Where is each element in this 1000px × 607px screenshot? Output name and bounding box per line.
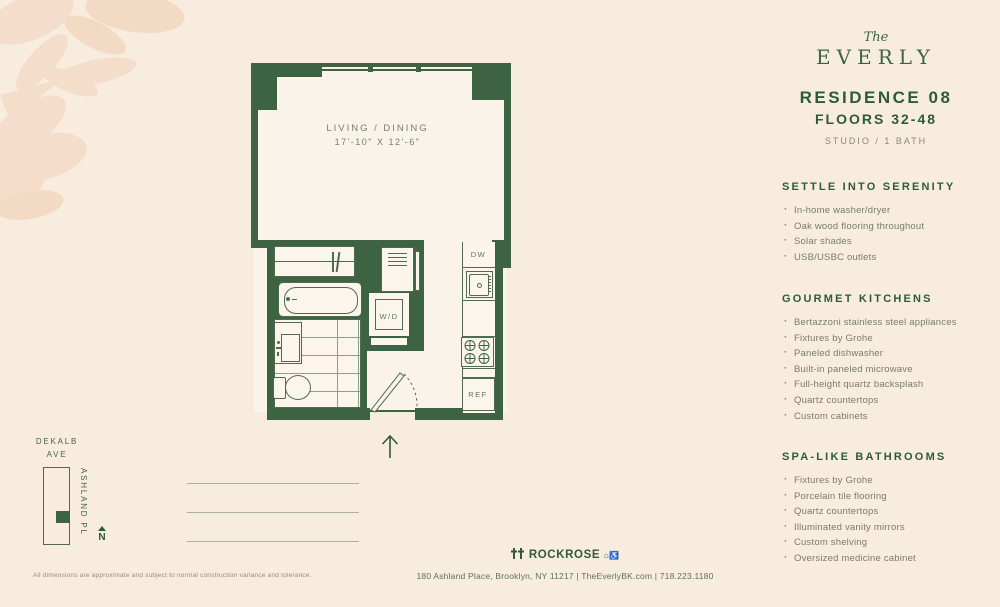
window-outer-line	[322, 63, 472, 67]
note-line	[187, 512, 359, 513]
wd-base	[371, 338, 407, 345]
feature-item: Quartz countertops	[782, 507, 1000, 517]
compass-arrow-icon	[98, 526, 106, 531]
developer-name: ROCKROSE	[529, 549, 600, 561]
map-street-side: ASHLAND PL	[79, 468, 88, 546]
vanity-sink	[274, 322, 302, 364]
window-inner-line	[322, 69, 472, 71]
residence-title: RESIDENCE 08	[770, 88, 982, 108]
refrigerator: REF	[462, 378, 495, 411]
section-serenity: SETTLE INTO SERENITY In-home washer/drye…	[782, 181, 1000, 268]
section-heading: SPA-LIKE BATHROOMS	[782, 451, 1000, 463]
feature-item: Built-in paneled microwave	[782, 365, 1000, 375]
feature-item: Paneled dishwasher	[782, 349, 1000, 359]
feature-item: Full-height quartz backsplash	[782, 380, 1000, 390]
feature-item: Solar shades	[782, 237, 1000, 247]
residence-floors: FLOORS 32-48	[770, 111, 982, 127]
flyer-page: LIVING / DINING 17'-10" X 12'-6" W/D	[0, 0, 1000, 607]
feature-item: USB/USBC outlets	[782, 253, 1000, 263]
map-building-marker	[56, 511, 70, 523]
stove	[461, 337, 494, 367]
cabinet-side-panel	[415, 251, 420, 291]
feature-list: Fixtures by Grohe Porcelain tile floorin…	[782, 476, 1000, 564]
dishwasher-label: DW	[462, 250, 495, 259]
compass-label: N	[94, 532, 110, 543]
sink-drain-icon	[477, 283, 482, 288]
tub-faucet-icon	[286, 297, 290, 301]
residence-header: RESIDENCE 08 FLOORS 32-48 STUDIO / 1 BAT…	[770, 88, 982, 146]
room-dimensions: 17'-10" X 12'-6"	[300, 137, 455, 147]
feature-item: Oak wood flooring throughout	[782, 222, 1000, 232]
washer-dryer-unit: W/D	[369, 293, 409, 336]
compass: N	[94, 526, 110, 543]
kitchen-sink	[466, 271, 493, 298]
closet	[274, 246, 355, 277]
wall-right-upper	[504, 98, 511, 243]
section-heading: GOURMET KITCHENS	[782, 293, 1000, 305]
section-heading: SETTLE INTO SERENITY	[782, 181, 1000, 193]
feature-item: Oversized medicine cabinet	[782, 554, 1000, 564]
map-block	[43, 467, 70, 545]
wall-top-right-pier	[472, 63, 511, 100]
disclaimer-text: All dimensions are approximate and subje…	[33, 572, 333, 579]
feature-item: Fixtures by Grohe	[782, 334, 1000, 344]
wall-left-upper	[251, 63, 258, 243]
brand-script-text: The	[770, 30, 982, 45]
room-label: LIVING / DINING	[300, 123, 455, 134]
feature-item: Custom cabinets	[782, 412, 1000, 422]
section-kitchens: GOURMET KITCHENS Bertazzoni stainless st…	[782, 293, 1000, 427]
residence-type: STUDIO / 1 BATH	[770, 136, 982, 146]
toilet-bowl	[285, 375, 311, 400]
wall-right-lower	[495, 266, 503, 420]
window-mullion	[368, 63, 373, 72]
feature-item: Porcelain tile flooring	[782, 492, 1000, 502]
ref-label: REF	[463, 390, 493, 399]
door-threshold	[370, 410, 417, 412]
wd-label: W/D	[379, 312, 398, 321]
feature-item: Fixtures by Grohe	[782, 476, 1000, 486]
foliage-decoration-icon	[0, 0, 240, 240]
brand-logo: The EVERLY	[770, 30, 982, 69]
shelf-cabinet	[381, 247, 414, 292]
feature-item: Quartz countertops	[782, 396, 1000, 406]
feature-item: Bertazzoni stainless steel appliances	[782, 318, 1000, 328]
rockrose-mark-icon	[510, 547, 525, 560]
brand-name-text: EVERLY	[770, 45, 982, 69]
accessibility-icon: ♿	[609, 551, 620, 560]
entry-arrow-icon	[383, 436, 398, 458]
feature-item: Illuminated vanity mirrors	[782, 523, 1000, 533]
window-mullion	[416, 63, 421, 72]
note-line	[187, 541, 359, 542]
feature-list: In-home washer/dryer Oak wood flooring t…	[782, 206, 1000, 262]
bathtub	[278, 282, 362, 317]
address-line: 180 Ashland Place, Brooklyn, NY 11217 | …	[380, 571, 750, 581]
sink-faucet-icon	[277, 341, 280, 344]
note-line	[187, 483, 359, 484]
wall-bottom-left	[267, 408, 370, 420]
stove-burners-icon	[462, 338, 493, 366]
feature-item: In-home washer/dryer	[782, 206, 1000, 216]
map-street-top: DEKALB AVE	[22, 437, 92, 459]
feature-item: Custom shelving	[782, 538, 1000, 548]
developer-logo: ROCKROSE ⌂♿	[380, 547, 750, 561]
feature-list: Bertazzoni stainless steel appliances Fi…	[782, 318, 1000, 421]
section-bathrooms: SPA-LIKE BATHROOMS Fixtures by Grohe Por…	[782, 451, 1000, 570]
